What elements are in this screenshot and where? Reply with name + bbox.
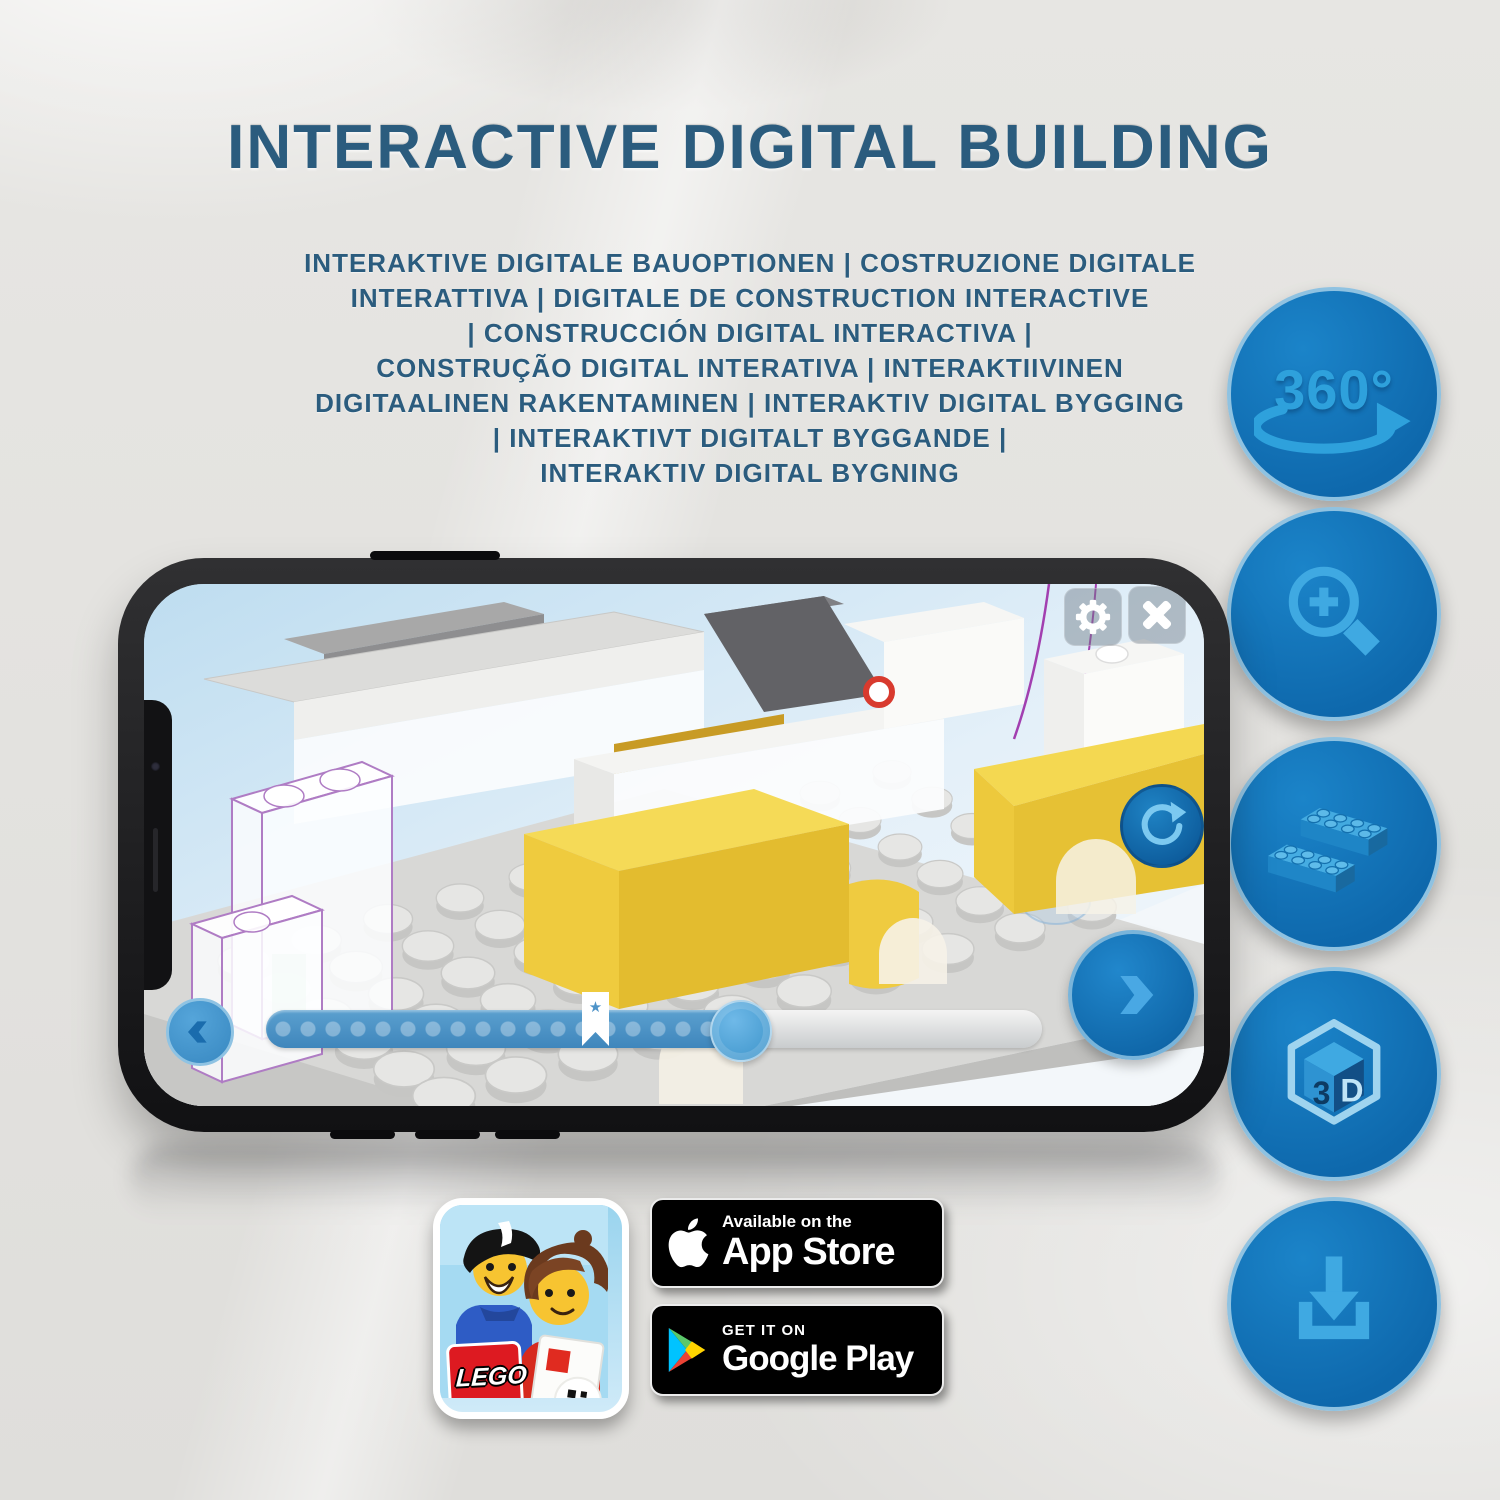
- feature-badge-360: 360°: [1227, 287, 1441, 501]
- rotate-view-button[interactable]: [1120, 784, 1204, 868]
- cube-3d-icon: 3 D: [1270, 1010, 1398, 1138]
- google-play-name: Google Play: [722, 1341, 913, 1378]
- subtitle-line: | CONSTRUCCIÓN DIGITAL INTERACTIVA |: [250, 316, 1250, 351]
- phone-volume-button: [415, 1130, 480, 1139]
- page: INTERACTIVE DIGITAL BUILDING INTERAKTIVE…: [0, 0, 1500, 1500]
- gear-icon: [1071, 595, 1115, 639]
- google-play-tagline: GET IT ON: [722, 1323, 913, 1339]
- front-camera: [151, 762, 160, 771]
- phone-volume-button: [330, 1130, 395, 1139]
- chevron-left-icon: [180, 1012, 220, 1052]
- rotation-arrow-icon: [1254, 396, 1414, 458]
- phone-volume-button: [495, 1130, 560, 1139]
- feature-badge-zoom: [1227, 507, 1441, 721]
- settings-button[interactable]: [1064, 588, 1122, 646]
- subtitle-line: | INTERAKTIVT DIGITALT BYGGANDE |: [250, 421, 1250, 456]
- feature-badge-bricks: [1227, 737, 1441, 951]
- lego-logo: LEGO: [455, 1361, 518, 1393]
- progress-fill: [266, 1010, 740, 1048]
- google-play-icon: [652, 1327, 722, 1373]
- close-button[interactable]: [1128, 586, 1186, 644]
- speaker-slit: [153, 828, 158, 892]
- feature-badge-3d: 3 D: [1227, 967, 1441, 1181]
- apple-icon: [652, 1217, 722, 1269]
- zoom-in-icon: [1273, 553, 1395, 675]
- subtitle-line: INTERAKTIVE DIGITALE BAUOPTIONEN | COSTR…: [250, 246, 1250, 281]
- rotate-arrow-icon: [1136, 800, 1188, 852]
- page-title: INTERACTIVE DIGITAL BUILDING: [0, 112, 1500, 183]
- phone-power-button: [370, 551, 500, 560]
- next-step-button[interactable]: [1068, 930, 1198, 1060]
- app-store-tagline: Available on the: [722, 1213, 895, 1231]
- subtitle-block: INTERAKTIVE DIGITALE BAUOPTIONEN | COSTR…: [250, 246, 1250, 491]
- google-play-text: GET IT ON Google Play: [722, 1323, 913, 1378]
- download-icon: [1272, 1242, 1396, 1366]
- previous-step-button[interactable]: [166, 998, 234, 1066]
- phone-mockup: ★: [118, 558, 1230, 1132]
- build-progress-slider[interactable]: [266, 1010, 1042, 1048]
- app-screen: ★: [144, 584, 1204, 1106]
- subtitle-line: INTERAKTIV DIGITAL BYGNING: [250, 456, 1250, 491]
- phone-notch: [144, 700, 172, 990]
- subtitle-line: DIGITAALINEN RAKENTAMINEN | INTERAKTIV D…: [250, 386, 1250, 421]
- bricks-icon: [1268, 784, 1400, 904]
- close-icon: [1136, 594, 1178, 636]
- app-store-name: App Store: [722, 1233, 895, 1273]
- google-play-badge[interactable]: GET IT ON Google Play: [650, 1304, 944, 1396]
- app-store-badge[interactable]: Available on the App Store: [650, 1198, 944, 1288]
- chevron-right-icon: [1095, 957, 1171, 1033]
- svg-text:3: 3: [1313, 1075, 1331, 1111]
- lego-app-icon[interactable]: LEGO: [433, 1198, 629, 1419]
- feature-badge-download: [1227, 1197, 1441, 1411]
- app-store-text: Available on the App Store: [722, 1213, 895, 1273]
- svg-text:D: D: [1340, 1073, 1363, 1109]
- subtitle-line: INTERATTIVA | DIGITALE DE CONSTRUCTION I…: [250, 281, 1250, 316]
- subtitle-line: CONSTRUÇÃO DIGITAL INTERATIVA | INTERAKT…: [250, 351, 1250, 386]
- slider-thumb[interactable]: [710, 1000, 772, 1062]
